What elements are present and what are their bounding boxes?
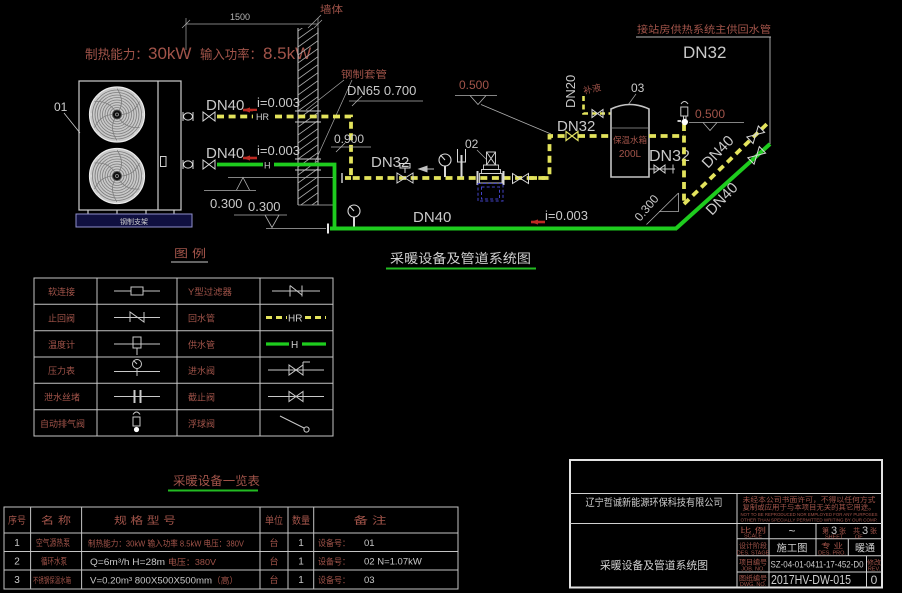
svg-text:未经本公司书面许可，不得以任何方式: 未经本公司书面许可，不得以任何方式 (743, 495, 876, 504)
svg-text:浮球阀: 浮球阀 (188, 418, 215, 429)
svg-text:供水管: 供水管 (188, 339, 215, 350)
svg-text:HR: HR (288, 314, 302, 325)
svg-text:0.300: 0.300 (210, 196, 243, 211)
svg-text:DWG. NO.: DWG. NO. (740, 582, 767, 588)
svg-text:2017HV-DW-015: 2017HV-DW-015 (771, 573, 851, 587)
svg-text:1: 1 (14, 538, 20, 549)
svg-text:采暖设备及管道系统图: 采暖设备及管道系统图 (600, 558, 708, 572)
svg-text:泄水丝堵: 泄水丝堵 (44, 392, 80, 403)
svg-text:03: 03 (631, 81, 645, 95)
svg-text:DES. STAGE: DES. STAGE (737, 550, 770, 556)
svg-text:H: H (264, 161, 271, 171)
svg-text:墙体: 墙体 (320, 3, 343, 16)
svg-text:台: 台 (269, 556, 278, 567)
svg-text:DN40: DN40 (413, 209, 451, 226)
svg-text:SHEET: SHEET (825, 535, 844, 541)
svg-text:200L: 200L (619, 149, 642, 160)
svg-text:3: 3 (14, 575, 20, 586)
svg-text:制热能力：: 制热能力： (85, 47, 148, 62)
svg-text:压力表: 压力表 (48, 365, 75, 376)
svg-text:1500: 1500 (230, 12, 250, 22)
svg-text:修改: 修改 (867, 558, 882, 567)
svg-text:02 N=1.07kW: 02 N=1.07kW (364, 557, 422, 568)
svg-text:制热能力：30kW 输入功率 8.5kW 电压：380V: 制热能力：30kW 输入功率 8.5kW 电压：380V (88, 539, 244, 549)
svg-text:01: 01 (54, 100, 68, 114)
svg-text:30kW: 30kW (148, 44, 191, 63)
svg-text:温度计: 温度计 (48, 339, 75, 350)
svg-text:0.500: 0.500 (695, 107, 725, 121)
svg-text:复制或应用于与本项目无关的其它用途。: 复制或应用于与本项目无关的其它用途。 (743, 503, 876, 512)
svg-text:0.900: 0.900 (334, 132, 364, 146)
svg-text:台: 台 (269, 574, 278, 585)
svg-text:软连接: 软连接 (48, 286, 75, 297)
svg-text:DN20: DN20 (563, 75, 578, 108)
svg-text:保温水箱: 保温水箱 (613, 135, 647, 145)
svg-text:03: 03 (364, 575, 375, 586)
svg-text:i=0.003: i=0.003 (545, 208, 588, 223)
svg-text:1: 1 (298, 538, 304, 549)
svg-text:输入功率：: 输入功率： (200, 47, 262, 62)
svg-text:数量: 数量 (292, 514, 310, 527)
svg-text:辽宁哲诚新能源环保科技有限公司: 辽宁哲诚新能源环保科技有限公司 (586, 496, 723, 509)
svg-text:3: 3 (862, 525, 868, 537)
svg-text:截止阀: 截止阀 (188, 392, 215, 403)
svg-text:张: 张 (870, 526, 877, 535)
svg-text:NOT TO BE REPRODUCED NOR EMPLO: NOT TO BE REPRODUCED NOR EMPLOYED FOR AN… (741, 512, 878, 517)
svg-text:DN32: DN32 (683, 43, 726, 62)
svg-text:设备号：: 设备号： (318, 557, 350, 567)
svg-text:单位: 单位 (265, 514, 283, 527)
svg-text:i=0.003: i=0.003 (257, 143, 300, 158)
svg-text:暖通: 暖通 (855, 542, 875, 555)
svg-text:REV.: REV. (868, 567, 881, 573)
svg-text:Y型过滤器: Y型过滤器 (188, 286, 232, 297)
svg-text:采暖设备一览表: 采暖设备一览表 (173, 473, 260, 488)
svg-text:不锈钢保温水箱: 不锈钢保温水箱 (33, 575, 71, 585)
svg-text:规 格 型 号: 规 格 型 号 (114, 514, 176, 527)
svg-text:钢制支架: 钢制支架 (120, 217, 148, 226)
svg-text:循环水泵: 循环水泵 (41, 556, 67, 567)
svg-text:采暖设备及管道系统图: 采暖设备及管道系统图 (390, 251, 531, 266)
svg-text:~: ~ (788, 524, 795, 538)
svg-text:SZ-04-01-0411-17-452-D0: SZ-04-01-0411-17-452-D0 (771, 560, 864, 570)
svg-text:0.300: 0.300 (248, 199, 281, 214)
svg-text:i=0.003: i=0.003 (257, 95, 300, 110)
svg-text:设备号：: 设备号： (318, 538, 350, 548)
svg-text:进水阀: 进水阀 (188, 365, 215, 376)
svg-text:施工图: 施工图 (777, 542, 808, 555)
svg-text:0: 0 (871, 573, 878, 587)
svg-text:Q=6m³/h H=28m 电压：380V: Q=6m³/h H=28m 电压：380V (90, 557, 216, 568)
svg-text:V=0.20m³ 800X500X500mm（高）: V=0.20m³ 800X500X500mm（高） (90, 576, 238, 587)
svg-text:序号: 序号 (8, 514, 26, 527)
svg-text:回水管: 回水管 (188, 313, 215, 324)
svg-text:接站房供热系统主供回水管: 接站房供热系统主供回水管 (637, 23, 771, 36)
svg-text:设计阶段: 设计阶段 (739, 541, 767, 550)
svg-text:专 业: 专 业 (821, 541, 843, 550)
svg-text:OTHER THAN SPECIALLY PERMITTED: OTHER THAN SPECIALLY PERMITTED WRITING B… (741, 518, 878, 523)
svg-text:2: 2 (14, 557, 20, 568)
svg-text:SCALE: SCALE (744, 533, 762, 539)
svg-text:DN40: DN40 (206, 97, 244, 114)
svg-text:8.5kW: 8.5kW (263, 44, 311, 63)
svg-text:图 例: 图 例 (174, 246, 206, 260)
svg-text:止回阀: 止回阀 (48, 313, 75, 324)
svg-text:空气源热泵: 空气源热泵 (36, 537, 70, 548)
svg-text:名 称: 名 称 (41, 514, 71, 527)
svg-text:02: 02 (465, 137, 479, 151)
svg-text:DN65 0.700: DN65 0.700 (347, 83, 416, 98)
svg-text:DES. PRO.: DES. PRO. (818, 551, 846, 557)
svg-text:DN32: DN32 (557, 118, 595, 135)
svg-text:H: H (291, 340, 298, 351)
svg-text:自动排气阀: 自动排气阀 (40, 418, 85, 429)
svg-text:HR: HR (256, 112, 269, 122)
svg-text:钢制套管: 钢制套管 (341, 68, 387, 81)
svg-text:1: 1 (298, 575, 304, 586)
svg-text:设备号：: 设备号： (318, 575, 350, 585)
svg-text:台: 台 (269, 537, 278, 548)
svg-text:备 注: 备 注 (354, 514, 387, 527)
svg-text:0.500: 0.500 (459, 78, 489, 92)
svg-text:1: 1 (298, 557, 304, 568)
svg-text:JOB. NO.: JOB. NO. (741, 566, 765, 572)
svg-text:OF: OF (855, 535, 863, 541)
svg-text:DN40: DN40 (206, 145, 244, 162)
svg-text:01: 01 (364, 538, 375, 549)
svg-text:项目编号: 项目编号 (739, 558, 767, 567)
